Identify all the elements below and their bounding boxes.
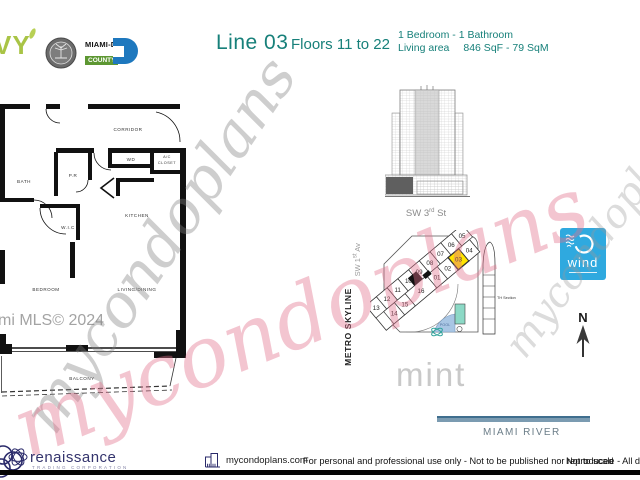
spa-shape xyxy=(455,304,465,324)
renaissance-logo-icon xyxy=(5,446,31,469)
river-label: MIAMI RIVER xyxy=(483,427,561,438)
bottom-rule xyxy=(0,470,640,475)
street-sw1-prefix: SW 1 xyxy=(353,258,362,276)
street-sw1-sup: st xyxy=(352,253,358,258)
wind-logo: wind xyxy=(560,228,606,280)
miami-dade-d-icon xyxy=(113,38,138,64)
buildings-icon xyxy=(204,451,222,468)
unit-number: 14 xyxy=(391,311,398,318)
living-area-value: 846 SqF - 79 SqM xyxy=(463,42,548,54)
unit-number-highlighted: 03 xyxy=(455,257,462,264)
street-sw3-prefix: SW 3 xyxy=(406,208,429,219)
river-bar xyxy=(437,416,590,422)
mls-watermark: mi MLS© 2024 xyxy=(0,312,104,330)
scale-note-text: Not to scale - All dimensio xyxy=(566,456,640,466)
floor-plan-drawing: CORRIDOR BATH P.R WD A/C CLOSET W.I.C KI… xyxy=(0,100,215,400)
north-label: N xyxy=(578,310,587,325)
building-elevation-drawing xyxy=(385,85,470,200)
keyplan-site-drawing: POOL TH Section 13 xyxy=(370,230,530,345)
th-section-label: TH Section xyxy=(497,296,516,300)
site-url[interactable]: mycondoplans.com xyxy=(226,455,308,466)
floors-range: Floors 11 to 22 xyxy=(291,36,390,53)
north-arrow: N xyxy=(572,310,594,360)
room-label-pr: P.R xyxy=(69,173,78,178)
bed-bath-info: 1 Bedroom - 1 Bathroom xyxy=(398,29,513,41)
city-seal-icon xyxy=(44,36,78,70)
room-label-bedroom: BEDROOM xyxy=(32,287,59,292)
unit-number: 15 xyxy=(401,302,408,309)
mint-logo: mint xyxy=(396,356,466,394)
living-area-info: Living area846 SqF - 79 SqM xyxy=(398,42,549,54)
room-label-balcony: BALCONY xyxy=(69,376,94,381)
room-label-kitchen: KITCHEN xyxy=(125,213,149,218)
room-label-ac: A/C xyxy=(163,155,171,159)
line-title: Line 03 xyxy=(216,31,288,55)
unit-number: 12 xyxy=(383,296,390,303)
condo-plan-sheet: VY MIAMI-DADE COUNTY Line 03 Floors 11 t… xyxy=(0,0,640,480)
wind-logo-text: wind xyxy=(567,255,599,270)
street-sw1-suffix: Av xyxy=(353,243,362,253)
unit-number: 07 xyxy=(437,251,444,258)
flower-watermark-icon xyxy=(428,324,446,340)
room-label-ac-closet: CLOSET xyxy=(158,161,176,165)
unit-number: 06 xyxy=(448,242,455,249)
unit-number: 09 xyxy=(416,269,423,276)
room-label-wd: WD xyxy=(127,157,136,162)
room-label-corridor: CORRIDOR xyxy=(113,127,142,132)
unit-strip: 13 12 11 10 09 08 07 06 05 14 15 16 01 0… xyxy=(370,230,483,330)
room-label-bath: BATH xyxy=(17,179,31,184)
unit-number: 10 xyxy=(405,278,412,285)
unit-number: 13 xyxy=(373,305,380,312)
unit-number: 16 xyxy=(418,288,425,295)
living-area-label: Living area xyxy=(398,42,449,54)
room-label-wic: W.I.C xyxy=(61,225,75,230)
street-label-sw3rd: SW 3rd St xyxy=(383,208,469,219)
street-sw3-suffix: St xyxy=(434,208,446,219)
th-tower-shape xyxy=(483,242,495,334)
renaissance-wordmark: renaissance xyxy=(30,449,116,466)
ivy-logo: VY xyxy=(0,30,31,61)
unit-number: 04 xyxy=(466,248,473,255)
unit-number: 05 xyxy=(459,233,466,240)
unit-number: 02 xyxy=(444,266,451,273)
street-label-sw1st: SW 1st Av xyxy=(352,220,362,300)
unit-number: 01 xyxy=(434,275,441,282)
unit-number: 11 xyxy=(394,287,401,294)
unit-number: 08 xyxy=(426,260,433,267)
room-label-living: LIVING/DINING xyxy=(118,287,157,292)
